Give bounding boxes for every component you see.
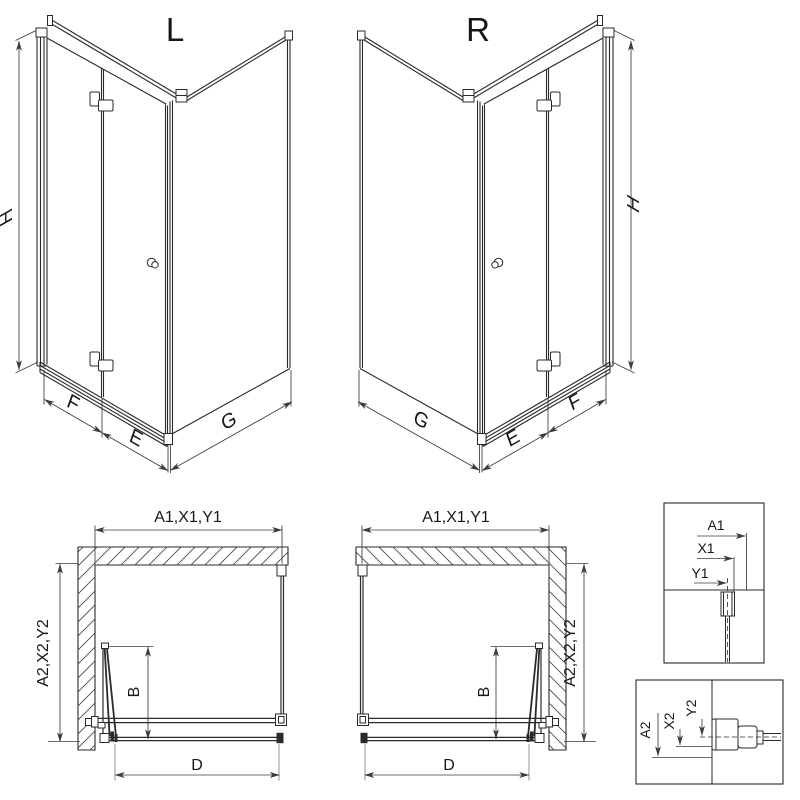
iso-left-fixed-dim-label: E — [127, 425, 146, 452]
plan-right-door-dim-label: B — [476, 687, 493, 698]
iso-left-side-dim-label: G — [218, 407, 239, 435]
detail-depth-y2-label: Y2 — [683, 699, 699, 716]
plan-view-left — [48, 526, 288, 781]
detail-width-a1-label: A1 — [707, 517, 724, 533]
iso-right-height-dim-label: H — [624, 191, 643, 216]
detail-depth-a2-label: A2 — [637, 721, 653, 738]
iso-right-side-dim-label: G — [411, 406, 432, 434]
iso-left-height-dim-label: H — [0, 204, 16, 229]
detail-box-depth — [636, 680, 783, 784]
iso-right-fold-dim-label: F — [566, 389, 584, 416]
shower-enclosure-drawing: L H F E G R H F E G A1,X1,Y1 A2,X2,Y2 B … — [0, 0, 800, 800]
iso-view-right — [358, 16, 635, 474]
iso-right-variant-label: R — [466, 11, 490, 48]
iso-left-variant-label: L — [166, 11, 184, 48]
iso-view-left — [16, 16, 293, 474]
plan-left-depth-dim-label: A2,X2,Y2 — [35, 619, 52, 687]
iso-right-fixed-dim-label: E — [503, 425, 522, 452]
plan-right-width-dim-label: A1,X1,Y1 — [422, 509, 490, 526]
plan-view-right — [356, 526, 596, 781]
detail-width-x1-label: X1 — [697, 540, 714, 556]
plan-right-depth-dim-label: A2,X2,Y2 — [562, 619, 579, 687]
plan-left-door-dim-label: B — [126, 687, 143, 698]
technical-drawing-page: L H F E G R H F E G A1,X1,Y1 A2,X2,Y2 B … — [0, 0, 800, 800]
plan-left-width-dim-label: A1,X1,Y1 — [154, 509, 222, 526]
detail-width-y1-label: Y1 — [691, 565, 708, 581]
plan-left-opening-dim-label: D — [191, 757, 203, 774]
detail-depth-x2-label: X2 — [661, 712, 677, 729]
plan-right-opening-dim-label: D — [443, 757, 455, 774]
